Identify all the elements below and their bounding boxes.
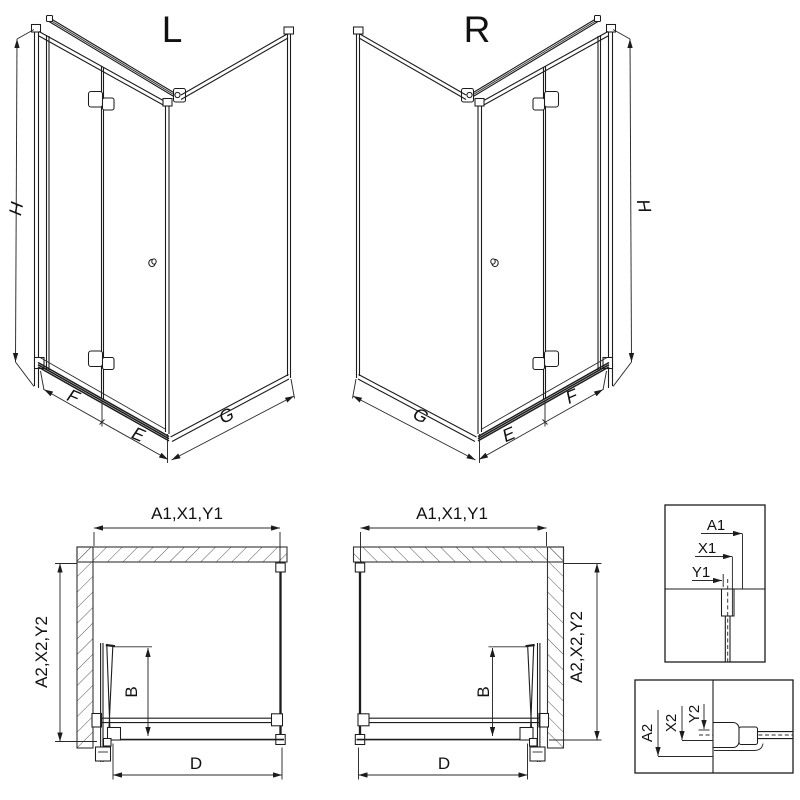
iso-right-title: R (464, 9, 491, 50)
plan-left-entry-width-label: D (190, 754, 202, 773)
detail-box-top: A1 X1 Y1 (665, 505, 765, 662)
plan-view-right: A1,X1,Y1 A2,X2,Y2 B D (354, 504, 602, 780)
detail-top-y1-label: Y1 (692, 564, 710, 581)
iso-view-left: L H F E G (5, 9, 295, 463)
technical-drawing: L H F E G R H G E F A1,X1,Y1 A2,X2,Y2 B … (0, 0, 800, 800)
dim-label-g-right: G (410, 404, 431, 428)
detail-bottom-x2-label: X2 (663, 714, 680, 732)
plan-left-depth-label: A2,X2,Y2 (32, 616, 51, 688)
plan-right-door-projection-label: B (474, 686, 493, 697)
detail-top-a1-label: A1 (707, 517, 725, 534)
plan-right-entry-width-label: D (438, 754, 450, 773)
detail-top-x1-label: X1 (698, 540, 716, 557)
dim-label-e-right: E (499, 423, 519, 446)
detail-bottom-y2-label: Y2 (686, 705, 703, 723)
iso-left-title: L (162, 9, 183, 50)
plan-left-door-projection-label: B (122, 686, 141, 697)
dim-label-f-left: F (64, 385, 83, 408)
detail-bottom-a2-label: A2 (639, 724, 656, 742)
plan-right-width-label: A1,X1,Y1 (416, 504, 488, 523)
plan-right-depth-label: A2,X2,Y2 (567, 611, 586, 683)
iso-view-right: R H G E F (353, 9, 656, 463)
dim-label-e-left: E (129, 423, 149, 446)
dim-label-h-right: H (633, 198, 655, 216)
dim-label-g-left: G (216, 404, 237, 428)
plan-left-width-label: A1,X1,Y1 (151, 504, 223, 523)
dim-label-f-right: F (563, 385, 582, 408)
plan-view-left: A1,X1,Y1 A2,X2,Y2 B D (32, 504, 287, 780)
detail-box-bottom: A2 X2 Y2 (635, 680, 793, 773)
